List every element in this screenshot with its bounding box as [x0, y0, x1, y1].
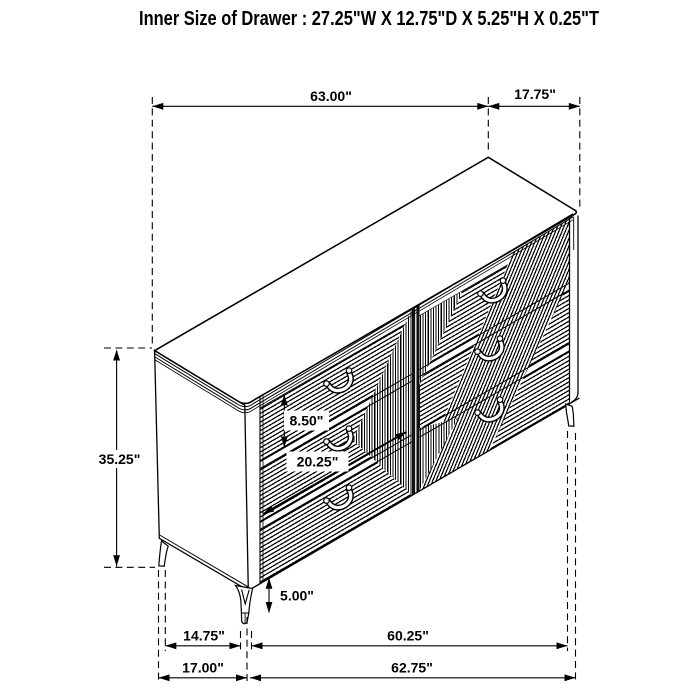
svg-text:17.75": 17.75" — [514, 86, 556, 102]
svg-text:60.25": 60.25" — [387, 628, 429, 644]
svg-text:20.25": 20.25" — [297, 454, 339, 470]
svg-text:62.75": 62.75" — [391, 660, 433, 676]
svg-text:5.00": 5.00" — [280, 588, 314, 604]
svg-text:17.00": 17.00" — [182, 660, 224, 676]
svg-text:63.00": 63.00" — [310, 88, 352, 104]
svg-text:Inner Size of Drawer : 27.25"W: Inner Size of Drawer : 27.25"W X 12.75"D… — [139, 7, 599, 30]
svg-text:8.50": 8.50" — [290, 413, 324, 429]
svg-text:35.25": 35.25" — [99, 451, 141, 467]
svg-text:14.75": 14.75" — [183, 628, 225, 644]
